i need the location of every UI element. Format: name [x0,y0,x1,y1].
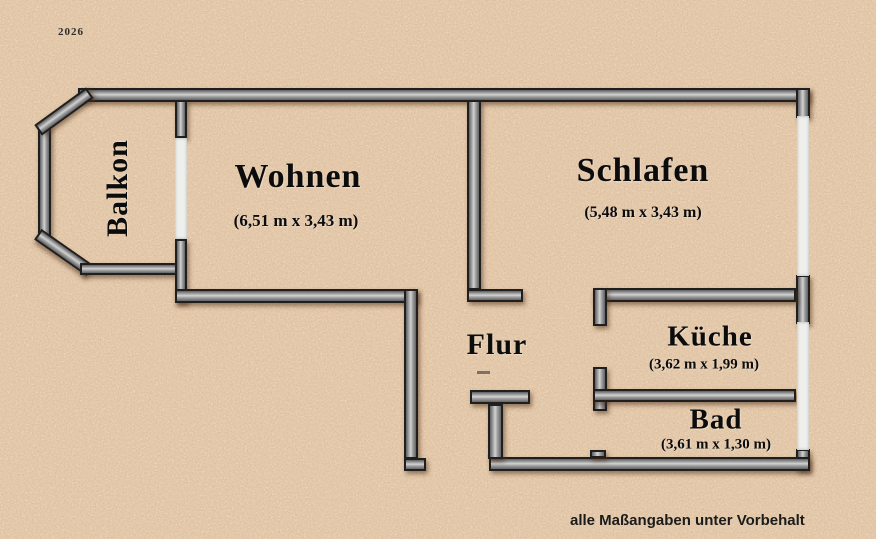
wall-kueche-bad-divider [593,389,796,402]
flur-tick-mark [477,371,490,374]
wall-wohnen-schlafen-divider [467,100,481,290]
wall-flur-left-foot [404,458,426,471]
room-label-schlafen: Schlafen [577,152,710,190]
wall-right-mid [796,275,810,324]
room-label-flur: Flur [467,328,528,362]
room-dims-kueche: (3,62 m x 1,99 m) [649,357,759,374]
wall-balkon-divider-upper [175,100,187,138]
kueche-bad-window-opening [797,322,809,450]
wall-top [78,88,810,102]
room-dims-bad: (3,61 m x 1,30 m) [661,437,771,454]
wall-kueche-door-jamb-top [593,288,607,326]
plan-number: 2026 [58,26,84,38]
wall-entry-bar [470,390,530,404]
wall-entry-leg [488,404,503,459]
wall-bottom [489,457,810,471]
floor-plan: 2026 Balkon Wohnen (6,51 m x 3,43 m) Sch… [0,0,876,539]
room-label-bad: Bad [690,404,743,437]
room-dims-schlafen: (5,48 m x 3,43 m) [584,204,701,222]
balkon-door-opening [175,138,187,239]
wall-wohnen-bottom [175,289,418,303]
room-label-balkon: Balkon [101,139,135,237]
wall-balkon-bottom [80,263,178,275]
wall-right-upper [796,88,810,118]
schlafen-window-opening [797,116,809,276]
room-label-kueche: Küche [667,321,753,354]
wall-schlafen-kueche [593,288,796,302]
wall-flur-left [404,289,418,459]
wall-wohnen-schlafen-foot [467,289,523,302]
disclaimer-text: alle Maßangaben unter Vorbehalt [570,512,805,529]
wall-bad-door-jamb-bottom [590,450,606,458]
room-label-wohnen: Wohnen [235,158,362,196]
wall-balkon-left [38,126,51,238]
room-dims-wohnen: (6,51 m x 3,43 m) [234,211,359,231]
